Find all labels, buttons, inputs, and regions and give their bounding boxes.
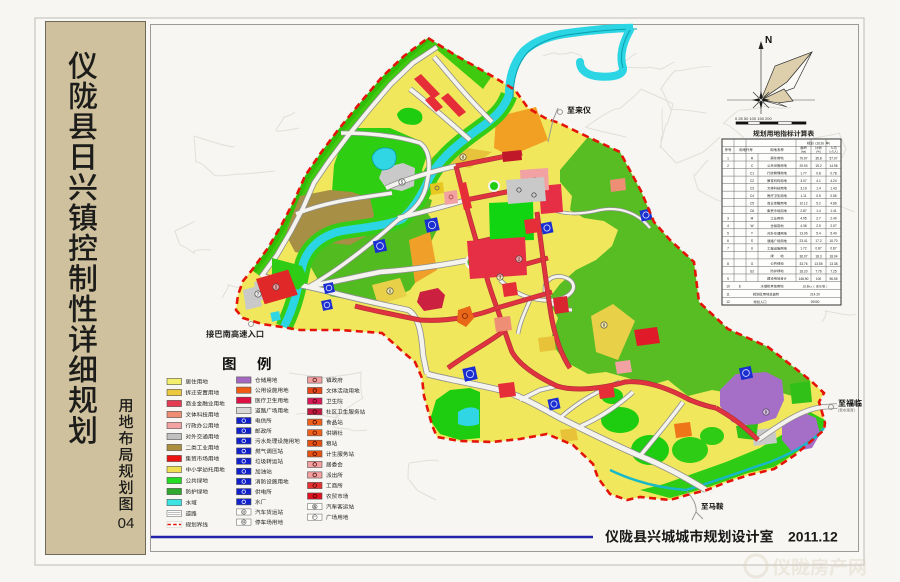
- svg-text:1.72: 1.72: [800, 247, 806, 251]
- svg-text:0.87: 0.87: [815, 247, 821, 251]
- svg-text:2: 2: [727, 164, 729, 168]
- svg-text:79.97: 79.97: [800, 156, 808, 160]
- svg-text:E: E: [739, 285, 741, 289]
- svg-text:5.40: 5.40: [830, 232, 836, 236]
- svg-text:13.38: 13.38: [830, 262, 838, 266]
- svg-text:M: M: [751, 217, 754, 221]
- svg-text:5.2: 5.2: [816, 202, 821, 206]
- svg-text:96.55: 96.55: [830, 277, 838, 281]
- svg-text:2.87: 2.87: [800, 209, 806, 213]
- svg-text:13.55: 13.55: [815, 262, 823, 266]
- svg-text:8: 8: [727, 262, 729, 266]
- svg-text:0.87: 0.87: [830, 247, 836, 251]
- svg-text:N: N: [765, 35, 772, 46]
- svg-text:T: T: [751, 232, 753, 236]
- svg-text:7.25: 7.25: [830, 269, 836, 273]
- svg-text:10: 10: [726, 285, 730, 289]
- svg-text:3.07: 3.07: [800, 179, 806, 183]
- svg-text:1.11: 1.11: [801, 194, 807, 198]
- svg-text:3: 3: [727, 217, 729, 221]
- svg-text:10.12: 10.12: [800, 202, 808, 206]
- svg-text:G2: G2: [750, 269, 754, 273]
- svg-text:1: 1: [727, 156, 729, 160]
- svg-text:04: 04: [118, 515, 135, 532]
- svg-text:0.5: 0.5: [816, 194, 821, 198]
- svg-text:23.41: 23.41: [800, 239, 808, 243]
- svg-text:C3: C3: [750, 186, 754, 190]
- svg-text:11: 11: [726, 293, 730, 297]
- svg-text:4.95: 4.95: [800, 217, 806, 221]
- svg-text:C1: C1: [750, 171, 754, 175]
- svg-text:13.06: 13.06: [800, 232, 808, 236]
- svg-text:100: 100: [816, 277, 822, 281]
- svg-text:(ha): (ha): [801, 150, 806, 154]
- svg-text:20000: 20000: [811, 300, 820, 304]
- svg-text:18.20: 18.20: [800, 269, 808, 273]
- svg-text:36.07: 36.07: [800, 254, 808, 258]
- svg-text:2.5: 2.5: [816, 224, 821, 228]
- svg-text:12: 12: [726, 300, 730, 304]
- svg-text:18.3: 18.3: [815, 254, 821, 258]
- svg-text:3.19: 3.19: [800, 186, 806, 190]
- svg-text:2011.12: 2011.12: [788, 529, 838, 545]
- svg-text:1.4: 1.4: [816, 186, 821, 190]
- svg-text:1.77: 1.77: [800, 171, 806, 175]
- svg-text:4.24: 4.24: [830, 179, 836, 183]
- svg-text:18.04: 18.04: [830, 254, 838, 258]
- svg-text:5.4: 5.4: [816, 232, 821, 236]
- svg-text:35.8: 35.8: [815, 156, 821, 160]
- svg-text:57.07: 57.07: [830, 156, 838, 160]
- svg-text:2.40: 2.40: [830, 217, 836, 221]
- svg-text:2.7: 2.7: [816, 217, 821, 221]
- svg-text:214.20: 214.20: [810, 293, 820, 297]
- svg-text:146.90: 146.90: [799, 277, 809, 281]
- svg-text:7.76: 7.76: [815, 269, 821, 273]
- svg-text:14.96: 14.96: [830, 164, 838, 168]
- svg-text:10.70: 10.70: [830, 239, 838, 243]
- svg-text:29.93: 29.93: [800, 164, 808, 168]
- svg-text:(%): (%): [816, 150, 821, 154]
- svg-text:9: 9: [727, 277, 729, 281]
- svg-text:4: 4: [727, 224, 729, 228]
- svg-text:0.56: 0.56: [830, 194, 836, 198]
- svg-text:15.2: 15.2: [815, 164, 821, 168]
- svg-text:17.2: 17.2: [815, 239, 821, 243]
- svg-text:1.43: 1.43: [830, 186, 836, 190]
- svg-text:0 25 50 100 150: 0 25 50 100 150 200: [735, 116, 772, 121]
- svg-text:1.4: 1.4: [816, 209, 821, 213]
- svg-text:2.07: 2.07: [830, 224, 836, 228]
- svg-text:1.41: 1.41: [830, 209, 836, 213]
- svg-text:W: W: [750, 224, 753, 228]
- svg-text:C2: C2: [750, 179, 754, 183]
- svg-text:C4: C4: [750, 194, 754, 198]
- svg-text:0.78: 0.78: [830, 171, 836, 175]
- svg-text:4.36: 4.36: [800, 224, 806, 228]
- svg-text:4.86: 4.86: [830, 202, 836, 206]
- svg-text:C5: C5: [750, 202, 754, 206]
- svg-text:S: S: [751, 239, 753, 243]
- svg-text:4.1: 4.1: [816, 179, 821, 183]
- svg-text:5: 5: [727, 232, 729, 236]
- svg-text:0.8: 0.8: [816, 171, 821, 175]
- svg-text:33.76: 33.76: [800, 262, 808, 266]
- svg-text:7: 7: [727, 247, 729, 251]
- svg-text:C6: C6: [750, 209, 754, 213]
- svg-text:6: 6: [727, 239, 729, 243]
